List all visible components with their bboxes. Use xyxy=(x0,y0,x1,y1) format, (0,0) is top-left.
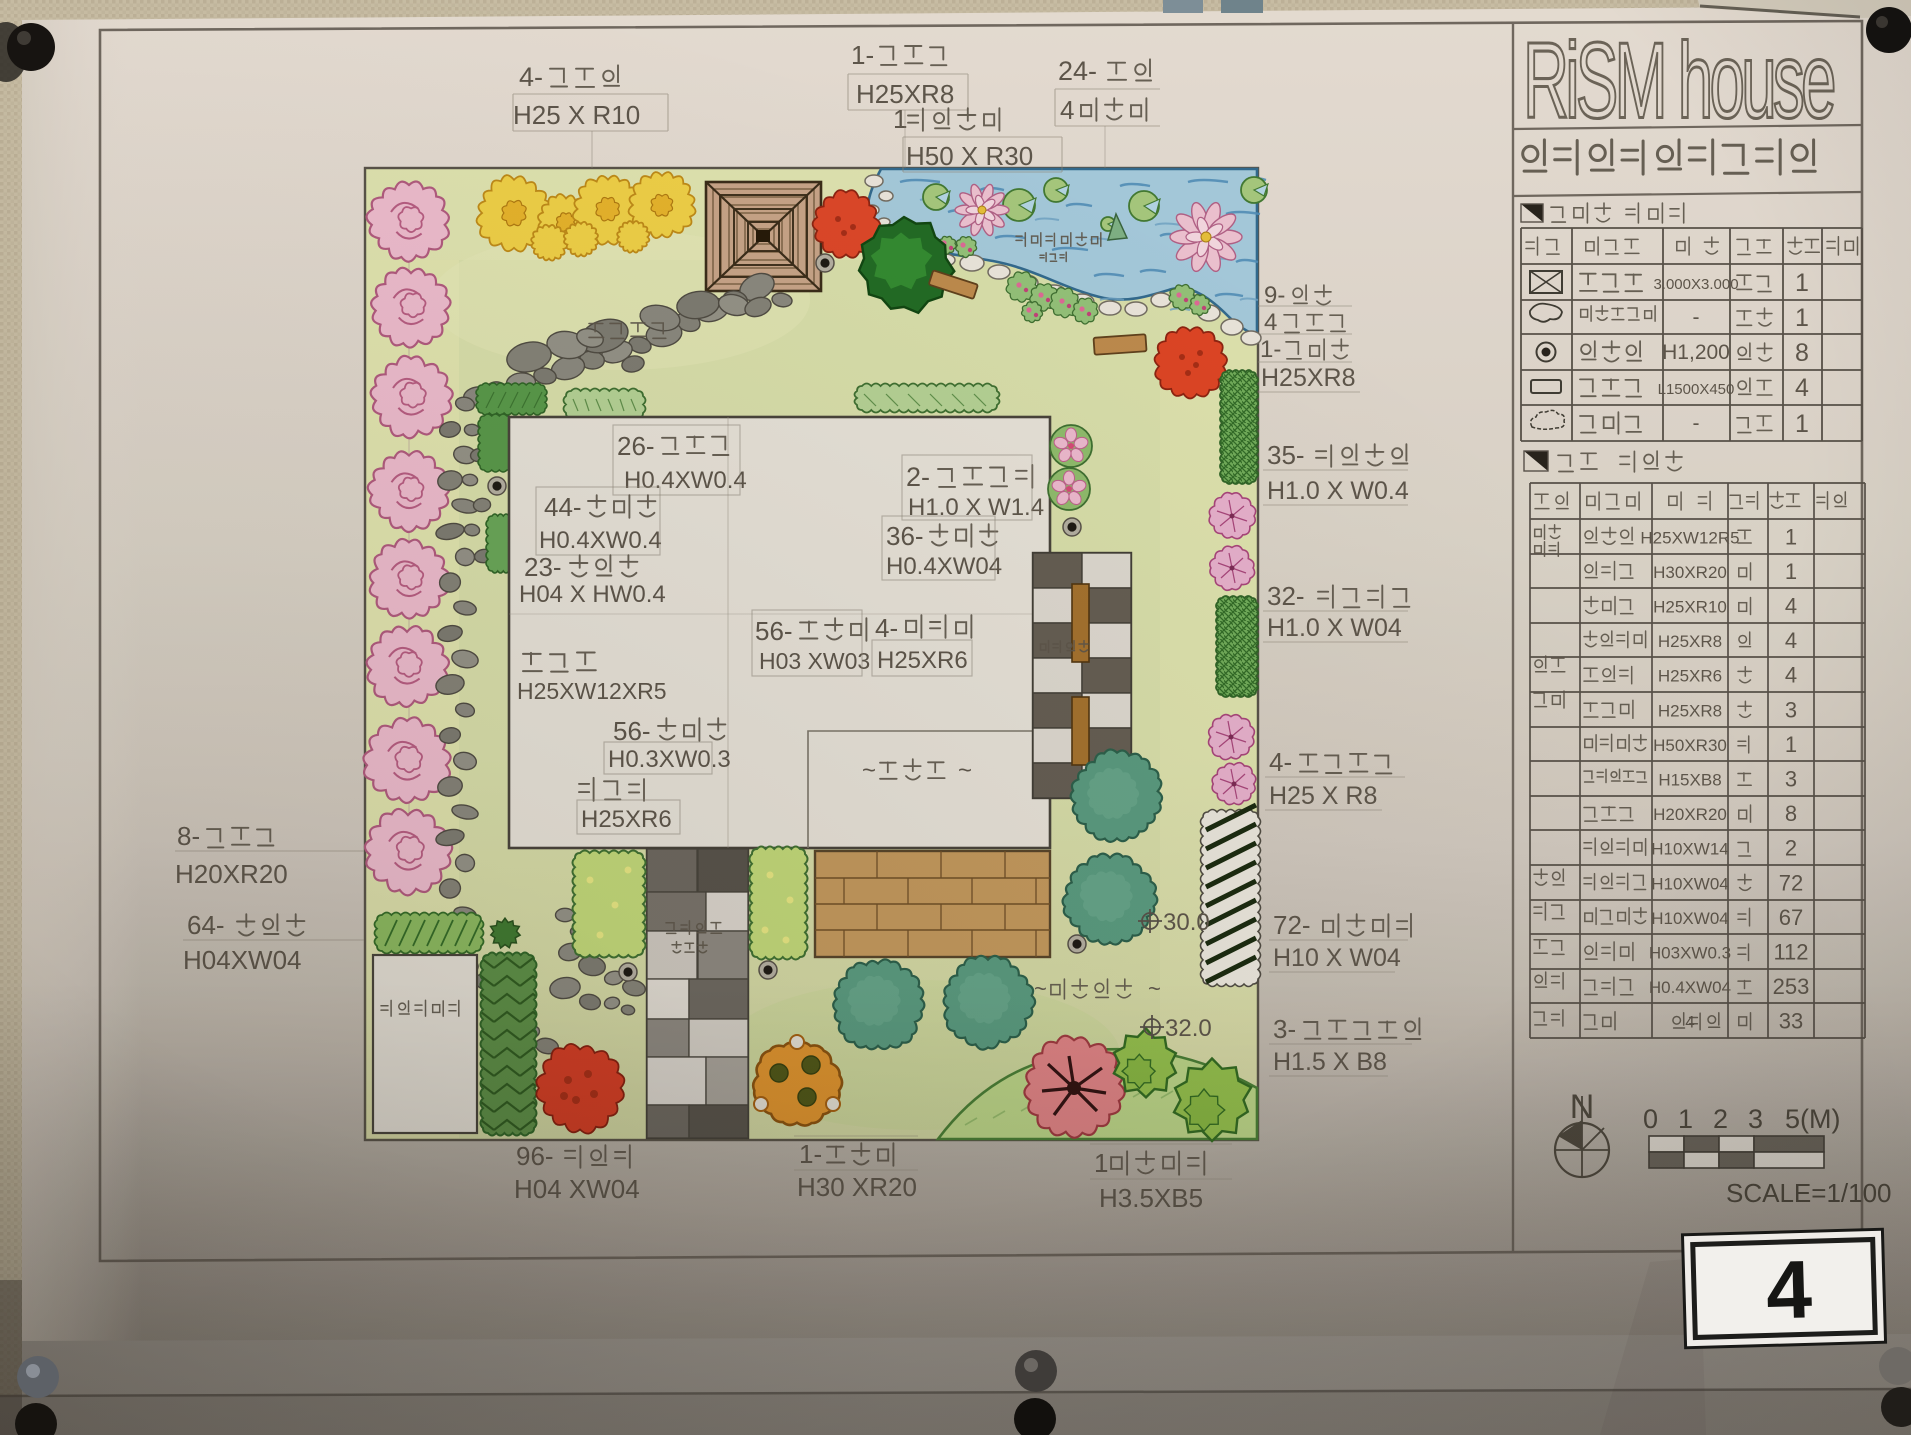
svg-text:4: 4 xyxy=(1765,1244,1814,1336)
